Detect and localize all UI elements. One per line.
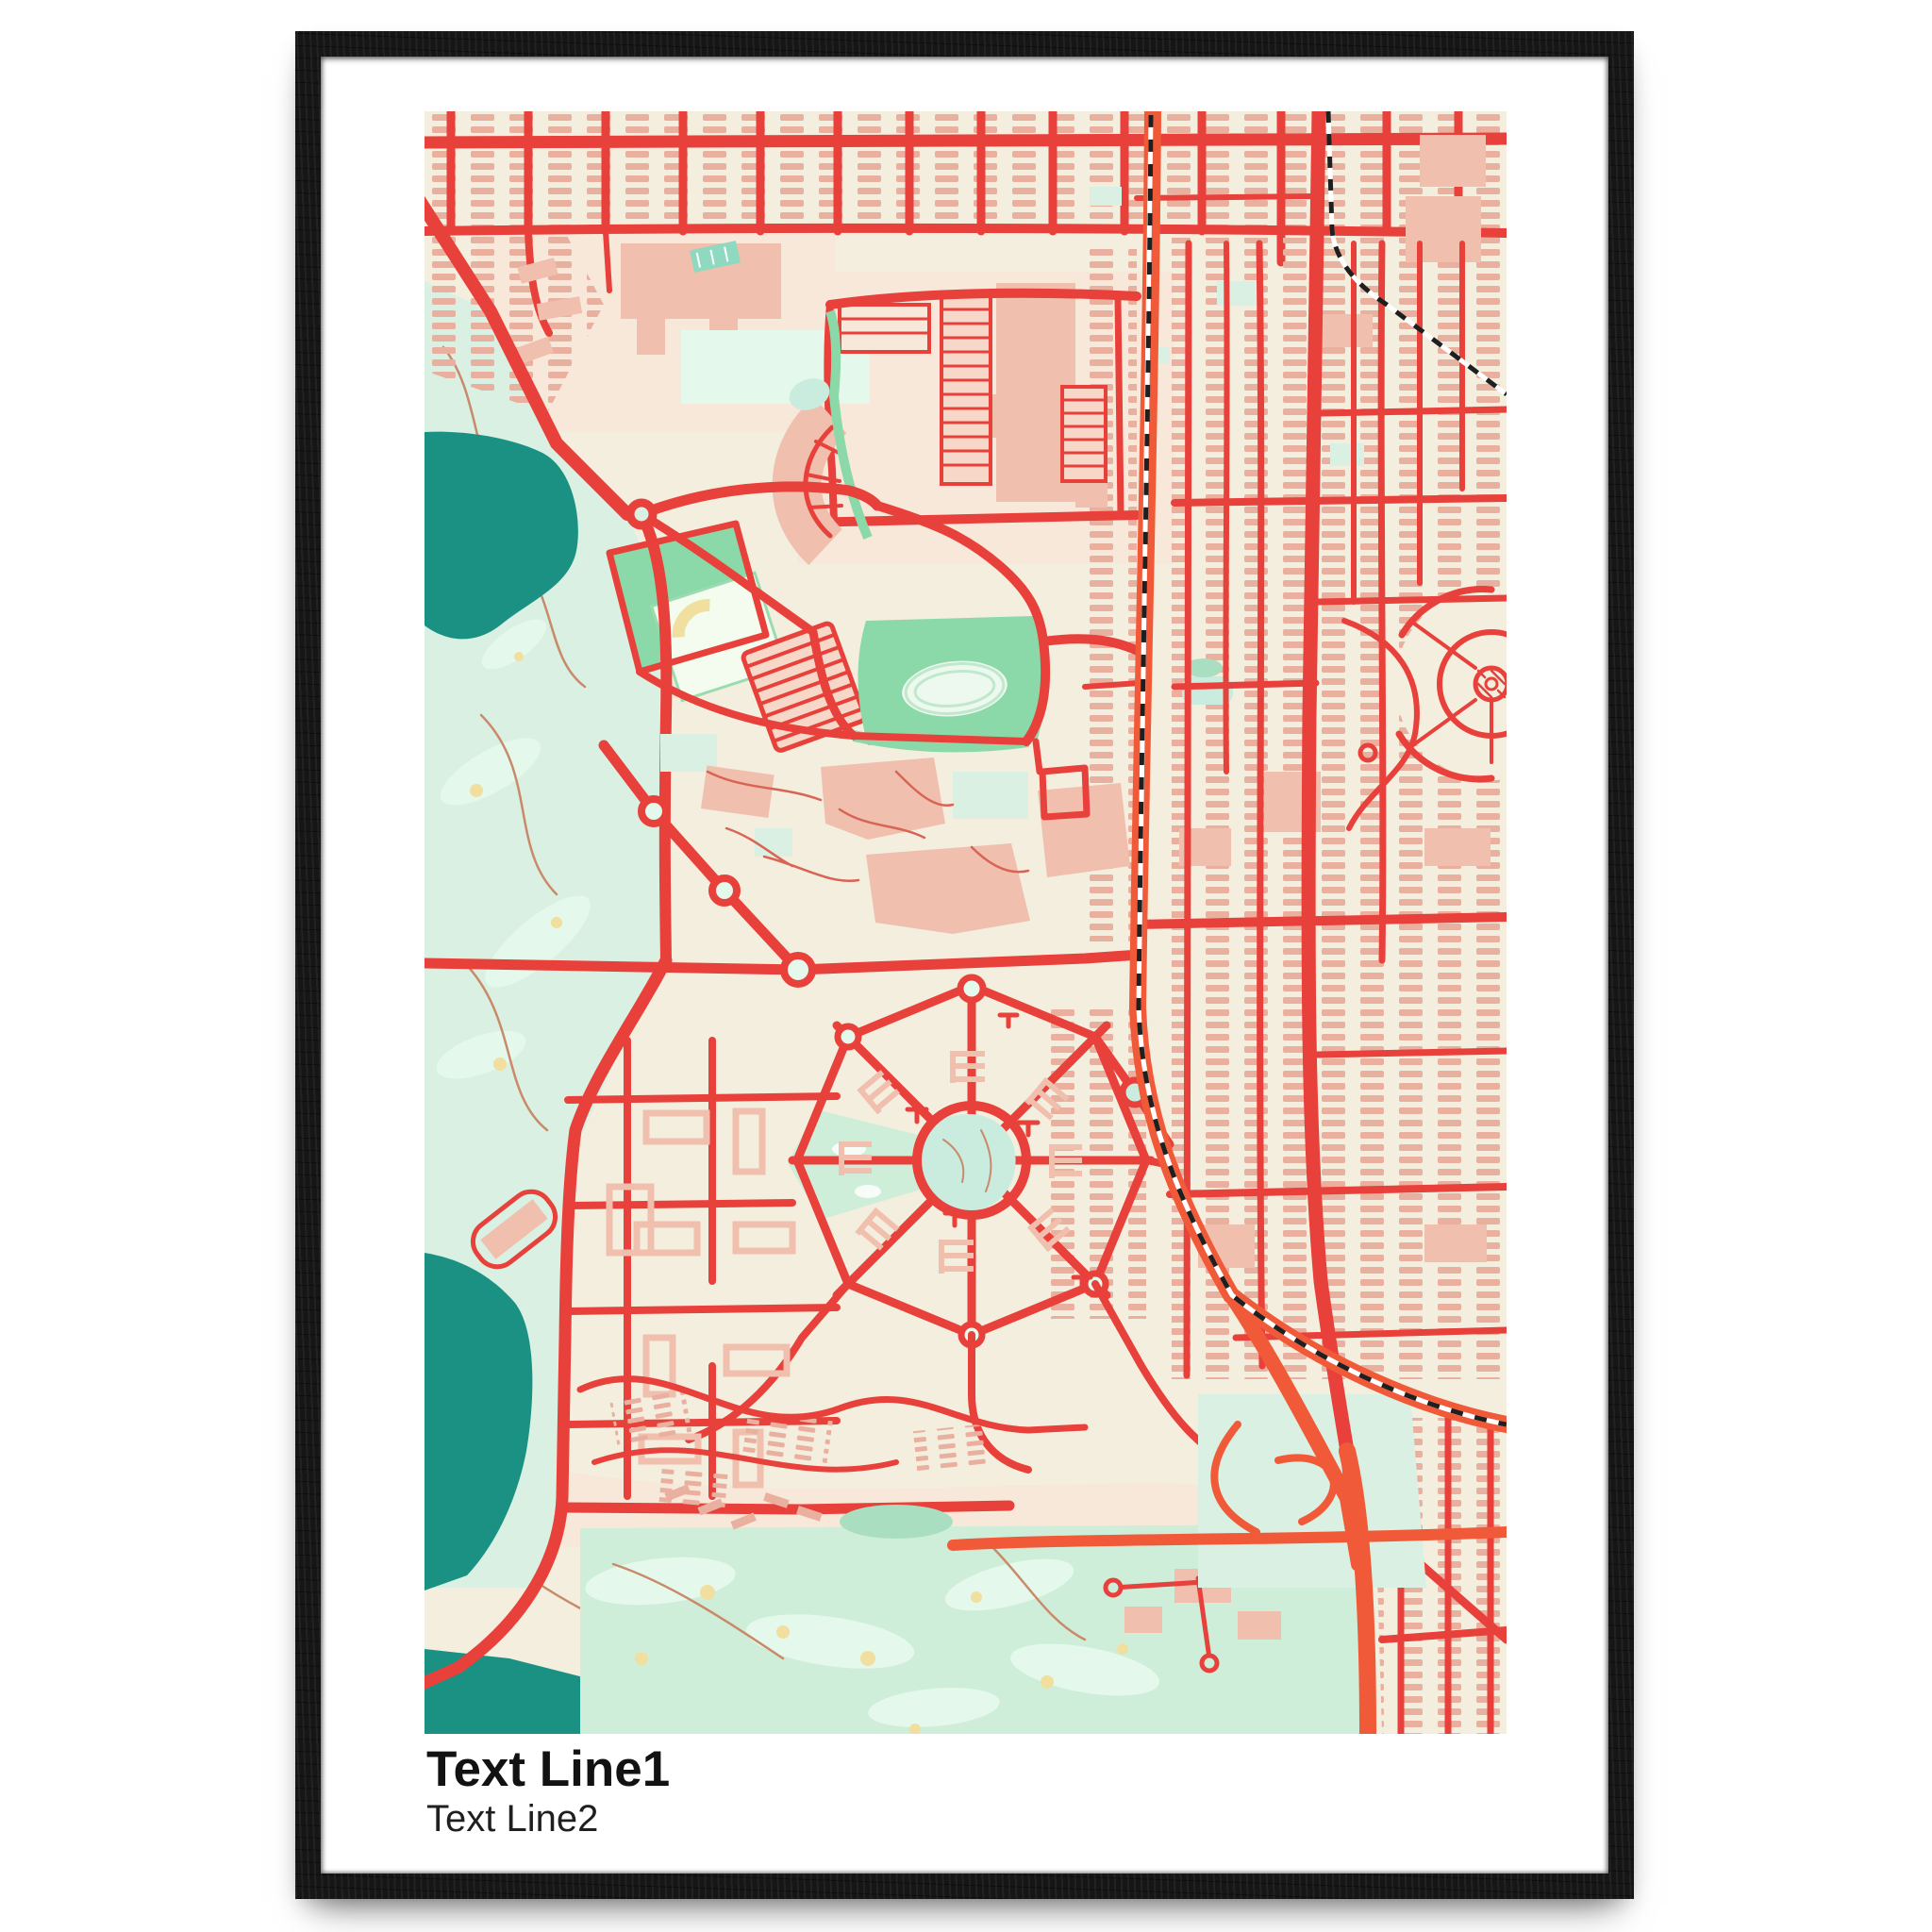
- product-mockup: Text Line1 Text Line2: [0, 0, 1932, 1932]
- poster-title: Text Line1: [426, 1743, 670, 1796]
- poster-frame: Text Line1 Text Line2: [295, 31, 1634, 1899]
- green-blob: [840, 1505, 953, 1539]
- main-street-north: [425, 139, 1507, 142]
- poster-mat: Text Line1 Text Line2: [321, 57, 1608, 1874]
- building-block: [1420, 135, 1486, 187]
- poster-subtitle: Text Line2: [426, 1798, 670, 1840]
- parking-lot: [840, 305, 929, 352]
- map-svg: [425, 111, 1507, 1734]
- parking-lot: [941, 295, 991, 484]
- poster-caption: Text Line1 Text Line2: [426, 1743, 670, 1840]
- map-print: [425, 111, 1507, 1734]
- parking-lot: [1062, 387, 1106, 481]
